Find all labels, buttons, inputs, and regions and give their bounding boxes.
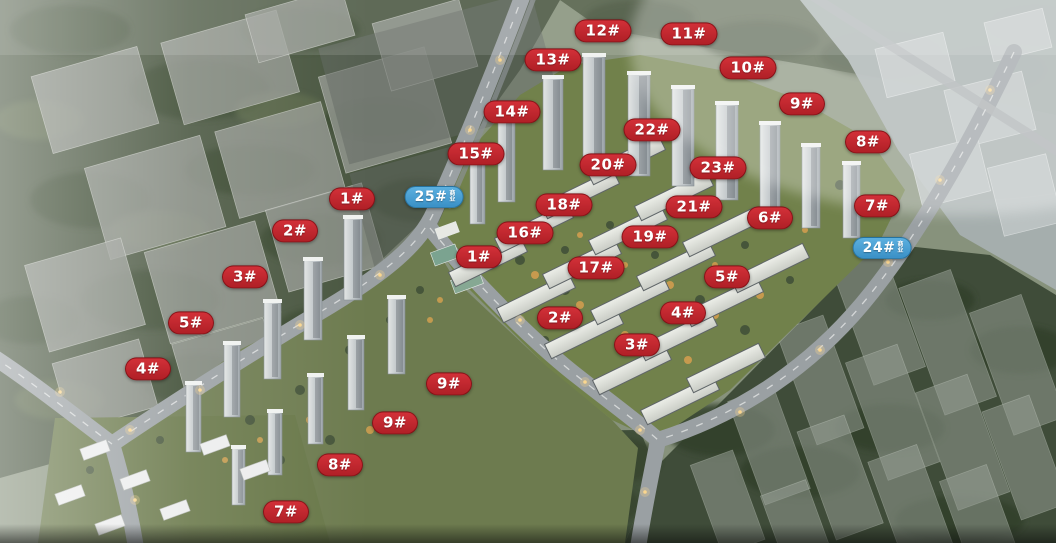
building-label-8: 8# [845,130,891,153]
label-number: 9# [383,414,407,431]
building-label-21: 21# [666,195,723,218]
label-number: 14# [495,103,530,120]
commercial-label-25: 25#商业 [405,186,464,208]
building-label-2: 2# [272,219,318,242]
building-label-16: 16# [497,221,554,244]
building-label-12: 12# [575,19,632,42]
building-label-7: 7# [263,500,309,523]
label-suffix: 商业 [449,191,456,204]
label-number: 5# [715,268,739,285]
label-number: 6# [758,209,782,226]
label-number: 12# [586,22,621,39]
building-label-1: 1# [456,245,502,268]
building-label-19: 19# [622,225,679,248]
label-layer: 12#11#13#10#9#14#22#8#15#20#23#25#商业1#18… [0,0,1056,543]
building-label-4: 4# [125,357,171,380]
building-label-23: 23# [690,156,747,179]
building-label-8: 8# [317,453,363,476]
label-number: 3# [233,268,257,285]
label-number: 15# [459,145,494,162]
building-label-5: 5# [704,265,750,288]
label-number: 11# [672,25,707,42]
commercial-label-24: 24#商业 [853,237,912,259]
building-label-3: 3# [614,333,660,356]
label-number: 18# [547,196,582,213]
label-number: 8# [856,133,880,150]
label-number: 7# [274,503,298,520]
label-number: 8# [328,456,352,473]
label-number: 21# [677,198,712,215]
building-label-4: 4# [660,301,706,324]
building-label-9: 9# [426,372,472,395]
building-label-22: 22# [624,118,681,141]
building-label-13: 13# [525,48,582,71]
label-number: 2# [283,222,307,239]
label-number: 9# [437,375,461,392]
building-label-9: 9# [372,411,418,434]
label-number: 17# [579,259,614,276]
label-number: 13# [536,51,571,68]
building-label-11: 11# [661,22,718,45]
label-number: 1# [467,248,491,265]
label-number: 20# [591,156,626,173]
building-label-17: 17# [568,256,625,279]
label-number: 5# [179,314,203,331]
building-label-6: 6# [747,206,793,229]
building-label-9: 9# [779,92,825,115]
label-number: 3# [625,336,649,353]
building-label-10: 10# [720,56,777,79]
label-number: 22# [635,121,670,138]
building-label-3: 3# [222,265,268,288]
building-label-14: 14# [484,100,541,123]
label-number: 10# [731,59,766,76]
building-label-20: 20# [580,153,637,176]
label-number: 2# [548,309,572,326]
label-number: 1# [340,190,364,207]
label-number: 4# [136,360,160,377]
building-label-7: 7# [854,194,900,217]
label-number: 25# [415,189,448,205]
label-number: 7# [865,197,889,214]
label-number: 16# [508,224,543,241]
aerial-render-view: 12#11#13#10#9#14#22#8#15#20#23#25#商业1#18… [0,0,1056,543]
label-number: 23# [701,159,736,176]
label-number: 9# [790,95,814,112]
building-label-15: 15# [448,142,505,165]
building-label-2: 2# [537,306,583,329]
label-number: 4# [671,304,695,321]
label-number: 19# [633,228,668,245]
building-label-5: 5# [168,311,214,334]
building-label-18: 18# [536,193,593,216]
label-suffix: 商业 [897,242,904,255]
building-label-1: 1# [329,187,375,210]
label-number: 24# [863,240,896,256]
